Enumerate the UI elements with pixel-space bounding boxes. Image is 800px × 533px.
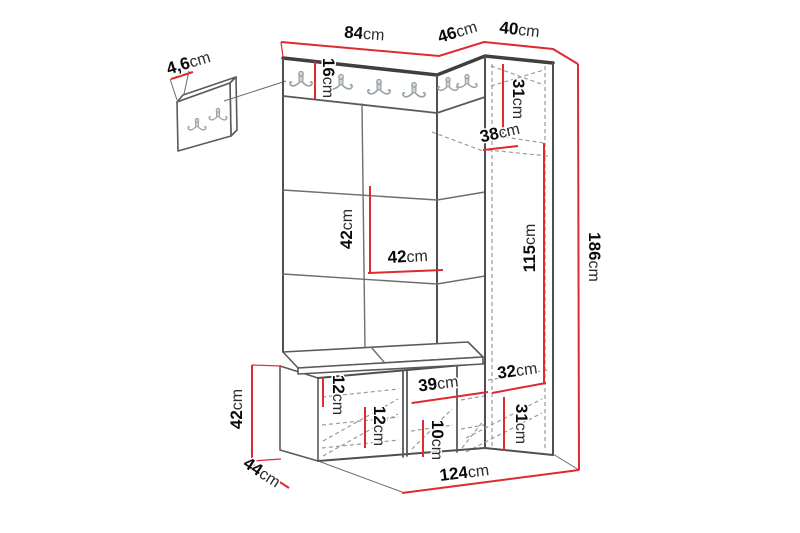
dim-line-total-height <box>578 64 579 470</box>
coat-hook-icon <box>457 74 477 87</box>
bench-left-side <box>280 366 318 461</box>
dim-label-cabinet-shelf-height: 32cm <box>496 358 539 382</box>
diagram-canvas: 4,6cm 84cm 46cm 40cm 16cm 31cm 38cm 42cm… <box>0 0 800 533</box>
hidden-shelf-line <box>461 396 484 400</box>
dim-label-cabinet-door-height: 115cm <box>520 224 539 273</box>
extension-line <box>170 79 177 100</box>
hidden-shelf-line <box>461 425 484 429</box>
hidden-shelf-line <box>488 150 548 156</box>
dim-label-cabinet-top-height: 31cm <box>509 79 528 119</box>
dim-label-tile-height: 42cm <box>337 209 356 249</box>
floor-projection-line <box>553 454 579 470</box>
dim-label-bench-height: 42cm <box>227 389 246 429</box>
dim-label-hook-rail-height: 16cm <box>319 58 338 98</box>
dim-line-total-width <box>402 470 579 493</box>
dim-label-width-corner: 46cm <box>435 17 479 47</box>
panel-division <box>283 190 437 200</box>
panel-division-corner <box>437 276 485 284</box>
panel-division-corner <box>437 192 485 200</box>
coat-hook-icon <box>290 71 312 85</box>
hidden-depth-line <box>432 132 483 151</box>
bench-front-bottom-edge <box>318 448 485 461</box>
hook-rail-bottom <box>283 96 485 113</box>
wall-panel-front <box>177 83 231 151</box>
coat-hook-icon <box>403 82 425 96</box>
coat-hook-icon <box>438 77 458 90</box>
floor-projection-line <box>318 461 402 492</box>
furniture-dimension-diagram: 4,6cm 84cm 46cm 40cm 16cm 31cm 38cm 42cm… <box>0 0 800 533</box>
dim-tick <box>252 365 281 366</box>
dim-label-tile-width: 42cm <box>387 246 428 267</box>
dim-label-total-height: 186cm <box>585 232 604 282</box>
coat-hook-icon <box>368 79 390 93</box>
dim-line-corner-depth <box>483 146 518 150</box>
dim-label-bench-shelf-mid: 12cm <box>370 406 389 446</box>
dim-line-tile-width <box>368 270 443 273</box>
panel-division <box>283 274 437 284</box>
wall-hook-panel <box>170 71 286 151</box>
dim-tick <box>281 42 283 57</box>
dim-label-total-width: 124cm <box>439 460 491 485</box>
cabinet-bottom-edge <box>485 448 553 455</box>
dim-label-width-main: 84cm <box>344 23 385 45</box>
dim-label-bench-shelf-top: 12cm <box>329 375 348 415</box>
dim-label-width-cabinet: 40cm <box>499 18 541 41</box>
dim-line-cabinet-shelf <box>492 383 546 393</box>
dim-label-bench-compartment-width: 39cm <box>417 372 459 396</box>
dim-label-bench-shelf-bottom: 10cm <box>428 420 447 460</box>
panel-mid-division <box>362 104 365 350</box>
dim-label-cabinet-bottom-height: 31cm <box>512 404 531 444</box>
